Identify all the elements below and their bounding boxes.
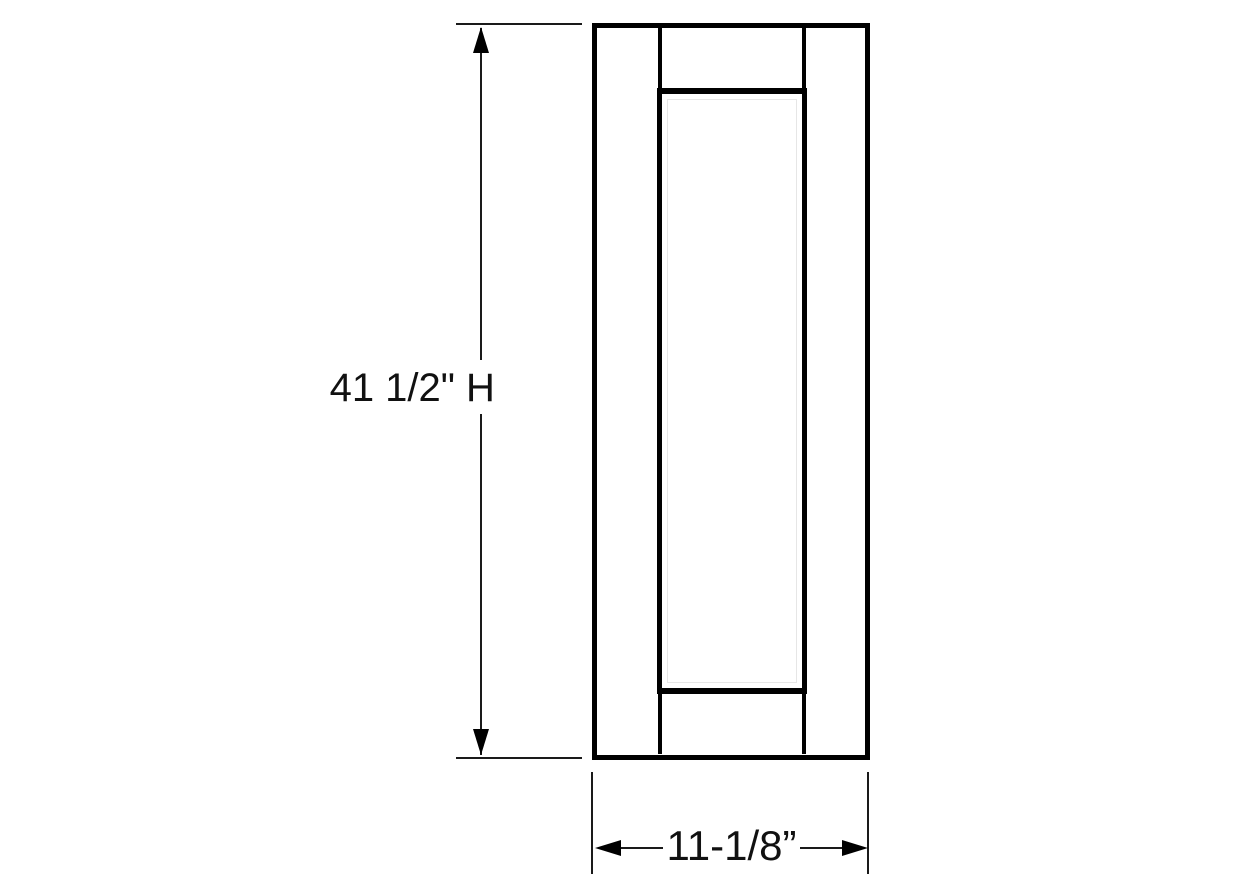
height-dimension-label: 41 1/2" [290,368,455,408]
height-dimension-line-lower [480,414,482,755]
arrow-up-icon [473,27,489,53]
arrow-down-icon [473,729,489,755]
drawing-canvas: 41 1/2" H 11-1/8” [0,0,1240,885]
arrow-right-icon [842,840,868,856]
arrow-left-icon [595,840,621,856]
height-extension-line-top [456,23,582,25]
width-dimension-line-left [618,847,663,849]
height-dimension-suffix: H [466,368,495,408]
width-dimension-line-right [800,847,842,849]
height-extension-line-bottom [456,757,582,759]
height-dimension-line-upper [480,28,482,360]
width-extension-line-right [867,772,869,874]
width-dimension-label: 11-1/8” [663,825,800,867]
panel-bevel-shading [667,99,797,683]
width-extension-line-left [591,772,593,874]
